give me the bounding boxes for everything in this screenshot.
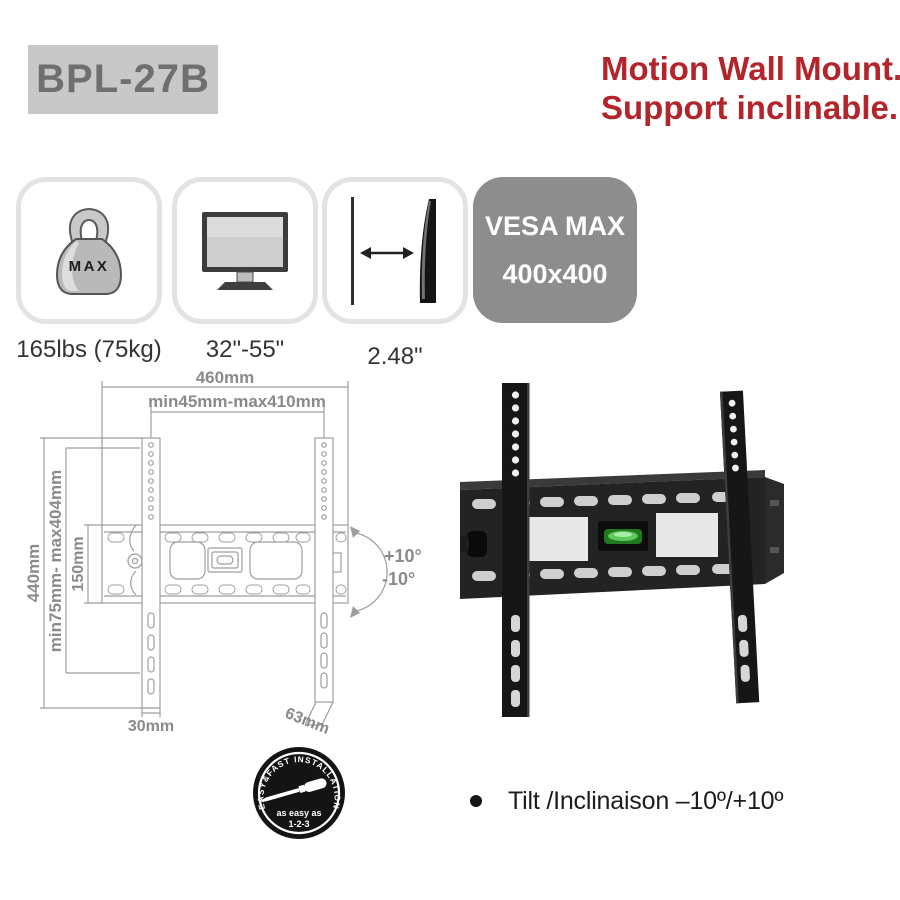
model-number-box: BPL-27B — [28, 45, 218, 114]
title-line-1: Motion Wall Mount. — [601, 50, 886, 89]
plate-side-bracket — [765, 477, 784, 584]
diagram-right-rail — [315, 438, 333, 702]
vesa-line-1: VESA MAX — [485, 211, 625, 242]
product-spec-sheet: BPL-27B Motion Wall Mount. Support incli… — [0, 0, 900, 900]
max-weight-icon: MAX — [43, 203, 135, 299]
tilt-feature-row: Tilt /Inclinaison –10º/+10º — [470, 787, 783, 816]
wall-line — [351, 197, 354, 305]
dim-height-total: 440mm — [24, 544, 43, 603]
screen-size-icon — [193, 207, 297, 295]
badge-line-2: 1-2-3 — [288, 819, 309, 829]
weight-label: 165lbs (75kg) — [16, 336, 162, 364]
max-label: MAX — [69, 258, 110, 275]
dimension-diagram: 460mm min45mm-max410mm 440mm min75mm- ma… — [20, 365, 440, 745]
feature-box-depth — [322, 177, 468, 324]
bubble-level — [598, 521, 648, 551]
vesa-max-box: VESA MAX 400x400 — [473, 177, 637, 323]
page-title: Motion Wall Mount. Support inclinable. — [601, 50, 886, 127]
title-line-2: Support inclinable. — [601, 89, 886, 128]
model-number: BPL-27B — [36, 57, 210, 102]
dim-width-range: min45mm-max410mm — [148, 392, 326, 411]
diagram-left-rail — [142, 438, 160, 708]
tilt-feature-text: Tilt /Inclinaison –10º/+10º — [508, 787, 783, 816]
dim-depth: 63mm — [283, 705, 332, 738]
slim-profile-icon — [343, 195, 447, 307]
dim-plate-height: 150mm — [70, 536, 87, 591]
vesa-line-2: 400x400 — [502, 259, 607, 290]
tilt-down-label: -10° — [382, 569, 415, 589]
dim-width-total: 460mm — [196, 368, 255, 387]
tilt-up-label: +10° — [384, 546, 422, 566]
feature-box-screen-size — [172, 177, 318, 324]
bullet-icon — [470, 795, 482, 807]
badge-line-1: as easy as — [276, 808, 321, 818]
dim-rail-width: 30mm — [128, 718, 174, 735]
product-photo — [440, 375, 880, 725]
easy-install-badge: EASY&FAST INSTALLATION as easy as 1-2-3 — [251, 745, 347, 841]
photo-left-rail — [502, 383, 530, 717]
feature-box-weight: MAX — [16, 177, 162, 324]
screen-size-label: 32"-55" — [172, 336, 318, 364]
dim-height-range: min75mm- max404mm — [46, 470, 65, 652]
